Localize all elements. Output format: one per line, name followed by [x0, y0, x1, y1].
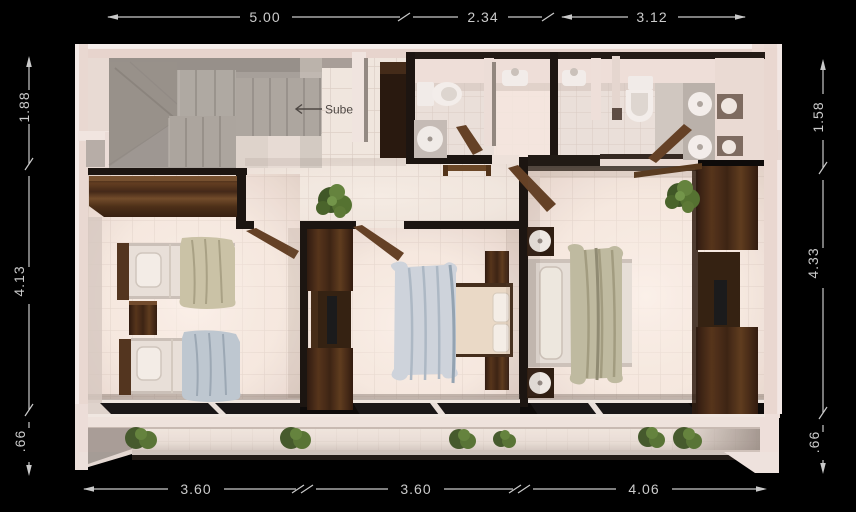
svg-text:.66: .66 [806, 431, 822, 453]
svg-text:4.06: 4.06 [628, 481, 659, 497]
svg-text:5.00: 5.00 [249, 9, 280, 25]
svg-text:3.60: 3.60 [180, 481, 211, 497]
svg-text:3.12: 3.12 [636, 9, 667, 25]
svg-text:.66: .66 [12, 430, 28, 452]
svg-text:4.13: 4.13 [11, 265, 27, 296]
svg-text:1.88: 1.88 [16, 91, 32, 122]
svg-text:4.33: 4.33 [805, 247, 821, 278]
svg-text:2.34: 2.34 [467, 9, 498, 25]
svg-text:3.60: 3.60 [400, 481, 431, 497]
svg-text:1.58: 1.58 [810, 101, 826, 132]
